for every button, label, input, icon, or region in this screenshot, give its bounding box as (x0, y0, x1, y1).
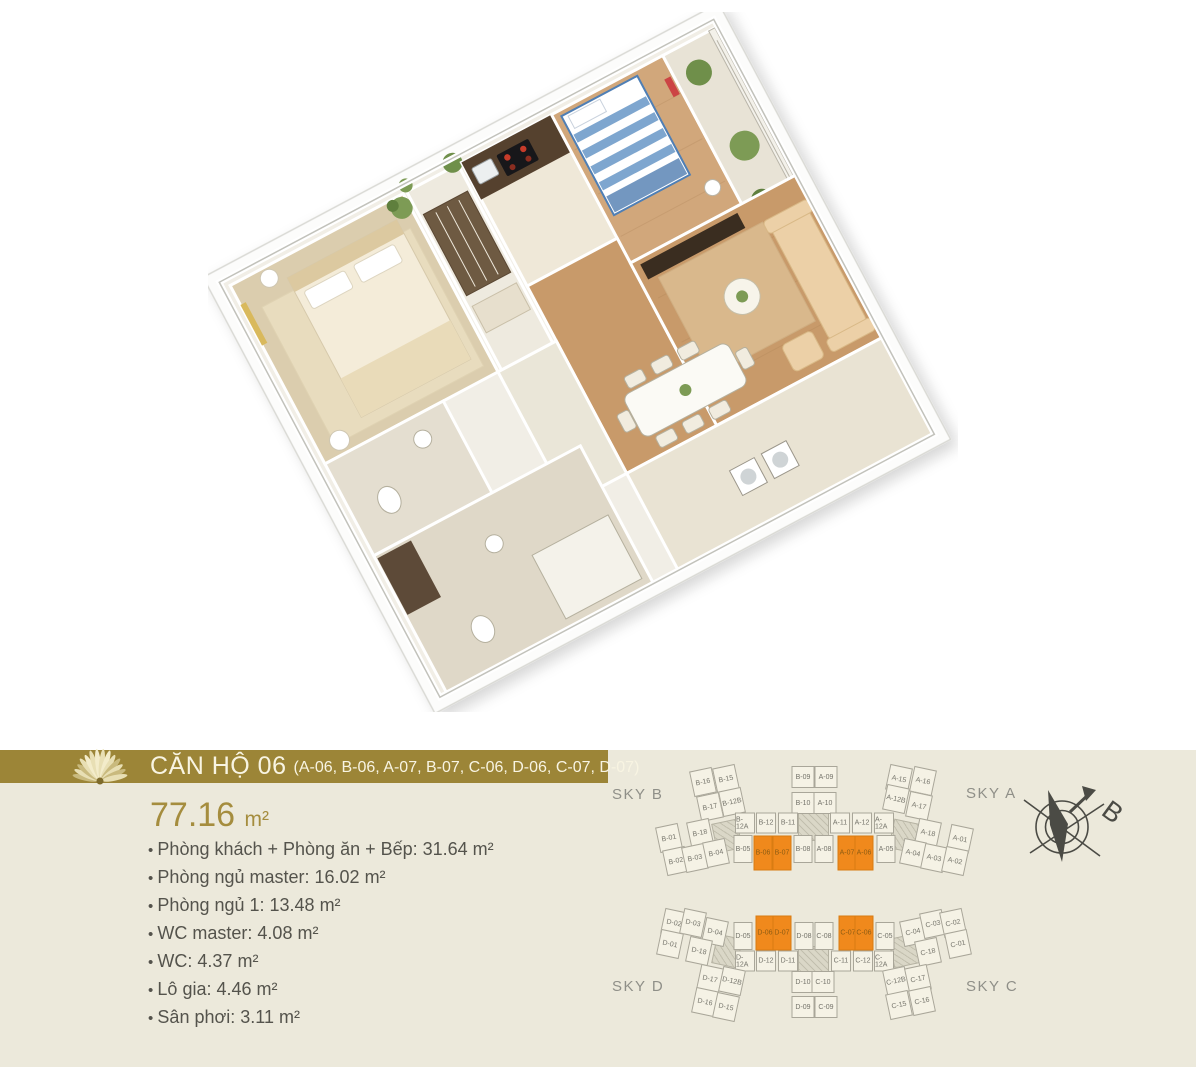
unit-cell-A-06: A-06 (855, 836, 874, 871)
unit-cell-B-07: B-07 (773, 836, 792, 871)
zone-label-sky-a: SKY A (966, 785, 1017, 802)
unit-cell-C-09: C-09 (815, 996, 838, 1018)
zone-label-sky-b: SKY B (612, 786, 663, 803)
unit-cell-B-05: B-05 (734, 835, 753, 863)
unit-cell-C-10: C-10 (812, 971, 835, 993)
unit-cell-A-02: A-02 (941, 846, 969, 876)
unit-cell-C-16: C-16 (908, 986, 936, 1016)
unit-cell-C-05: C-05 (876, 922, 895, 950)
unit-cell-A-10: A-10 (814, 792, 837, 814)
unit-cell-D-11: D-11 (778, 951, 798, 972)
unit-cell-C-11: C-11 (831, 951, 851, 972)
compass-north-label: B (1096, 795, 1122, 830)
unit-cell-D-15: D-15 (712, 992, 740, 1022)
unit-cell-D-12: D-12 (756, 951, 776, 972)
unit-cell-B-09: B-09 (792, 766, 815, 788)
unit-cell-B-06: B-06 (754, 836, 773, 871)
unit-cell-C-18: C-18 (914, 937, 942, 967)
page: CĂN HỘ 06 (A-06, B-06, A-07, B-07, C-06,… (0, 0, 1196, 1067)
floorplan-section (0, 0, 1196, 750)
info-panel: CĂN HỘ 06 (A-06, B-06, A-07, B-07, C-06,… (0, 750, 1196, 1067)
unit-cell-D-01: D-01 (656, 929, 684, 959)
unit-cell-A-12: A-12 (852, 813, 872, 834)
unit-cell-D-07: D-07 (773, 916, 792, 951)
unit-cell-D-08: D-08 (795, 922, 814, 950)
unit-cell-A-05: A-05 (877, 835, 896, 863)
unit-cell-A-11: A-11 (830, 813, 850, 834)
unit-cell-C-12: C-12 (853, 951, 873, 972)
unit-cell-B-08: B-08 (794, 835, 813, 863)
unit-cell-A-08: A-08 (815, 835, 834, 863)
compass-icon: B (1018, 778, 1122, 866)
zone-label-sky-d: SKY D (612, 978, 664, 995)
unit-cell-A-12A: A-12A (874, 813, 894, 834)
unit-cell-C-08: C-08 (815, 922, 834, 950)
unit-cell-C-06: C-06 (855, 916, 874, 951)
unit-cell-B-10: B-10 (792, 792, 815, 814)
unit-cell-A-17: A-17 (905, 791, 933, 821)
unit-cell-A-09: A-09 (815, 766, 838, 788)
unit-cell-D-05: D-05 (734, 922, 753, 950)
unit-cell-D-18: D-18 (685, 936, 713, 966)
unit-cell-B-12A: B-12A (735, 813, 755, 834)
site-plan: SKY B SKY A SKY D SKY C B (0, 750, 1196, 1067)
unit-cell-B-12: B-12 (756, 813, 776, 834)
zone-label-sky-c: SKY C (966, 978, 1018, 995)
unit-cell-D-12B: D-12B (718, 966, 746, 996)
unit-cell-B-11: B-11 (778, 813, 798, 834)
unit-cell-D-09: D-09 (792, 996, 815, 1018)
unit-cell-C-01: C-01 (944, 929, 972, 959)
floor-plan-3d (208, 12, 958, 712)
